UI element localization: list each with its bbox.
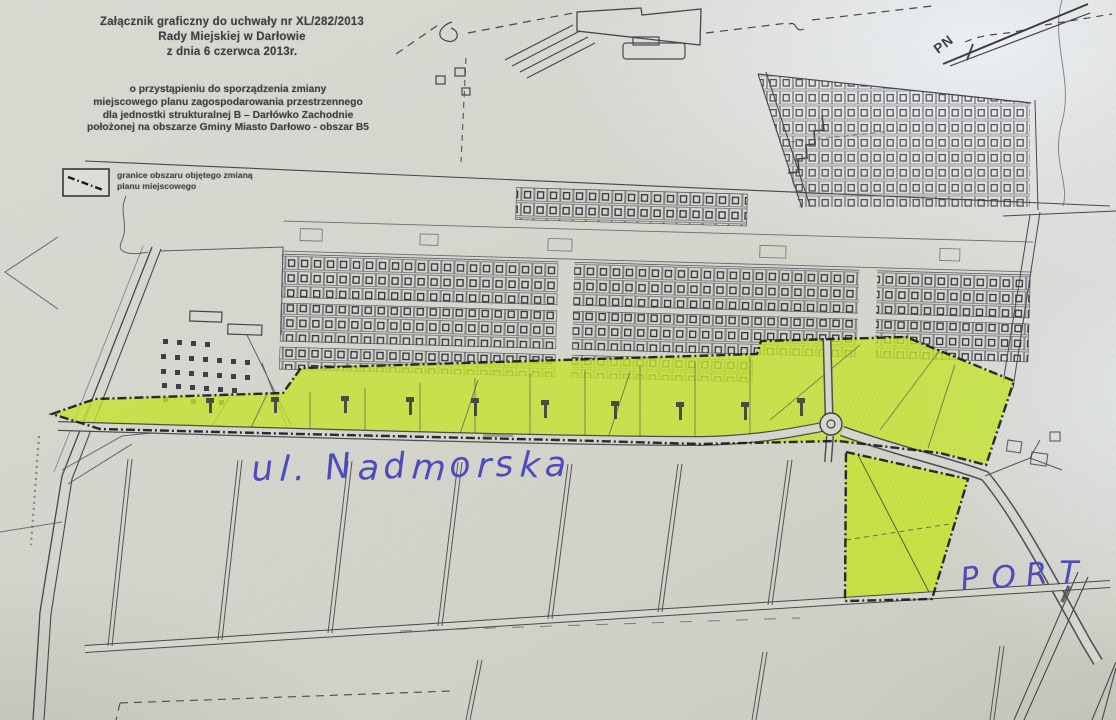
south-road <box>85 584 1110 649</box>
resolution-subject-line: położonej na obszarze Gminy Miasto Darło… <box>38 122 418 135</box>
street-name-annotation: ul. Nadmorska <box>250 442 572 494</box>
legend-label-line: planu miejscowego <box>117 181 337 192</box>
legend-label: granice obszaru objętego zmianą planu mi… <box>117 170 337 191</box>
legend-symbol <box>63 169 109 196</box>
north-arrow: PN <box>931 4 1090 66</box>
block-row-top <box>516 188 748 226</box>
small-structures-top <box>436 25 685 95</box>
legend-label-line: granice obszaru objętego zmianą <box>117 170 337 181</box>
attachment-title: Załącznik graficzny do uchwały nr XL/282… <box>52 15 412 60</box>
attachment-title-line: Rady Miejskiej w Darłowie <box>52 30 412 45</box>
coastline-dashed-line <box>396 6 1112 54</box>
north-label: PN <box>931 32 957 56</box>
north-arrow-line <box>943 4 1088 64</box>
beach-building-outline <box>577 8 701 45</box>
resolution-subject-line: o przystąpieniu do sporządzenia zmiany <box>38 84 418 97</box>
scanned-planning-map: PN ul. Nadmorska PORT Załącznik graficzn… <box>0 0 1116 720</box>
resolution-subject-line: miejscowego planu zagospodarowania przes… <box>38 97 418 110</box>
port-annotation: PORT <box>958 551 1092 600</box>
attachment-title-line: z dnia 6 czerwca 2013r. <box>52 45 412 60</box>
resolution-subject-line: dla jednostki strukturalnej B – Darłówko… <box>38 110 418 123</box>
printed-street-label-smudge <box>483 434 513 437</box>
resolution-subject: o przystąpieniu do sporządzenia zmiany m… <box>38 84 418 135</box>
attachment-title-line: Załącznik graficzny do uchwały nr XL/282… <box>52 15 412 30</box>
